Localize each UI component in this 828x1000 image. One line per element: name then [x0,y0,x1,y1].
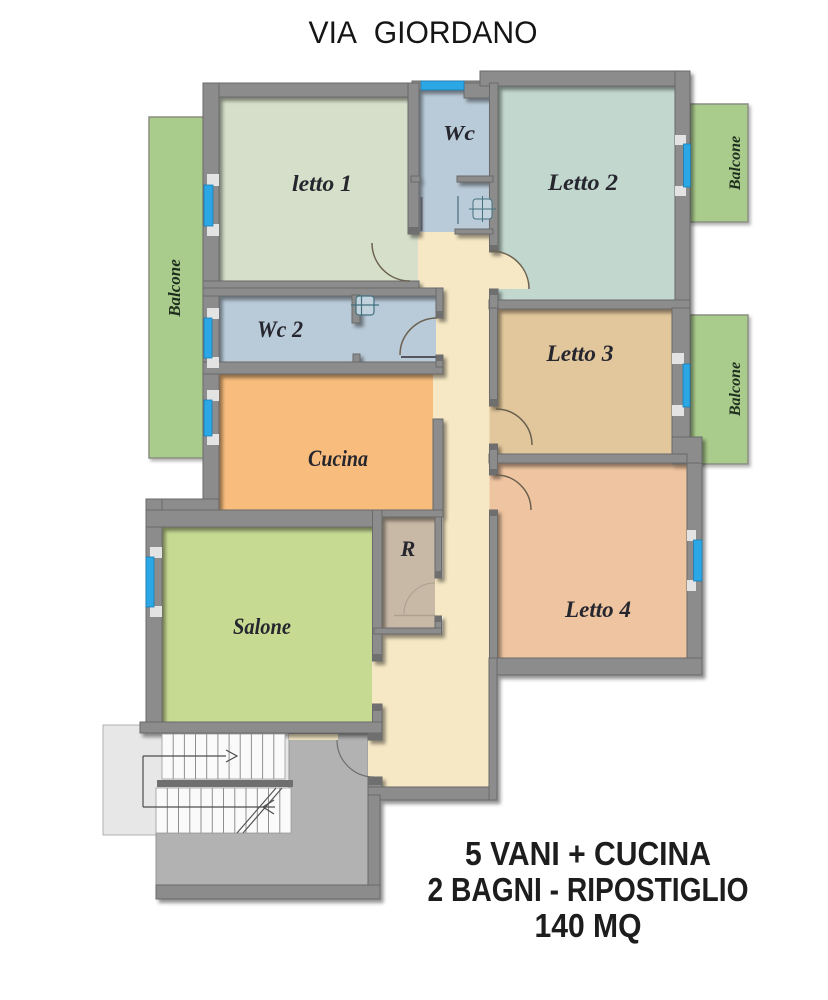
svg-text:Balcone: Balcone [165,259,184,318]
svg-text:Letto 4: Letto 4 [564,597,631,622]
svg-text:Cucina: Cucina [308,446,368,471]
svg-text:Balcone: Balcone [727,136,744,191]
svg-text:5 VANI + CUCINA: 5 VANI + CUCINA [465,835,711,872]
svg-text:Letto 3: Letto 3 [545,341,613,366]
svg-text:letto 1: letto 1 [292,171,352,196]
svg-text:Wc: Wc [443,121,476,145]
svg-text:Salone: Salone [233,614,291,639]
svg-text:Balcone: Balcone [727,362,744,417]
svg-text:VIA GIORDANO: VIA GIORDANO [309,14,538,50]
svg-text:R: R [400,536,416,561]
svg-text:Wc 2: Wc 2 [257,317,303,342]
svg-text:Letto 2: Letto 2 [547,170,618,195]
svg-text:140 MQ: 140 MQ [535,907,642,944]
svg-text:2 BAGNI - RIPOSTIGLIO: 2 BAGNI - RIPOSTIGLIO [428,871,749,908]
